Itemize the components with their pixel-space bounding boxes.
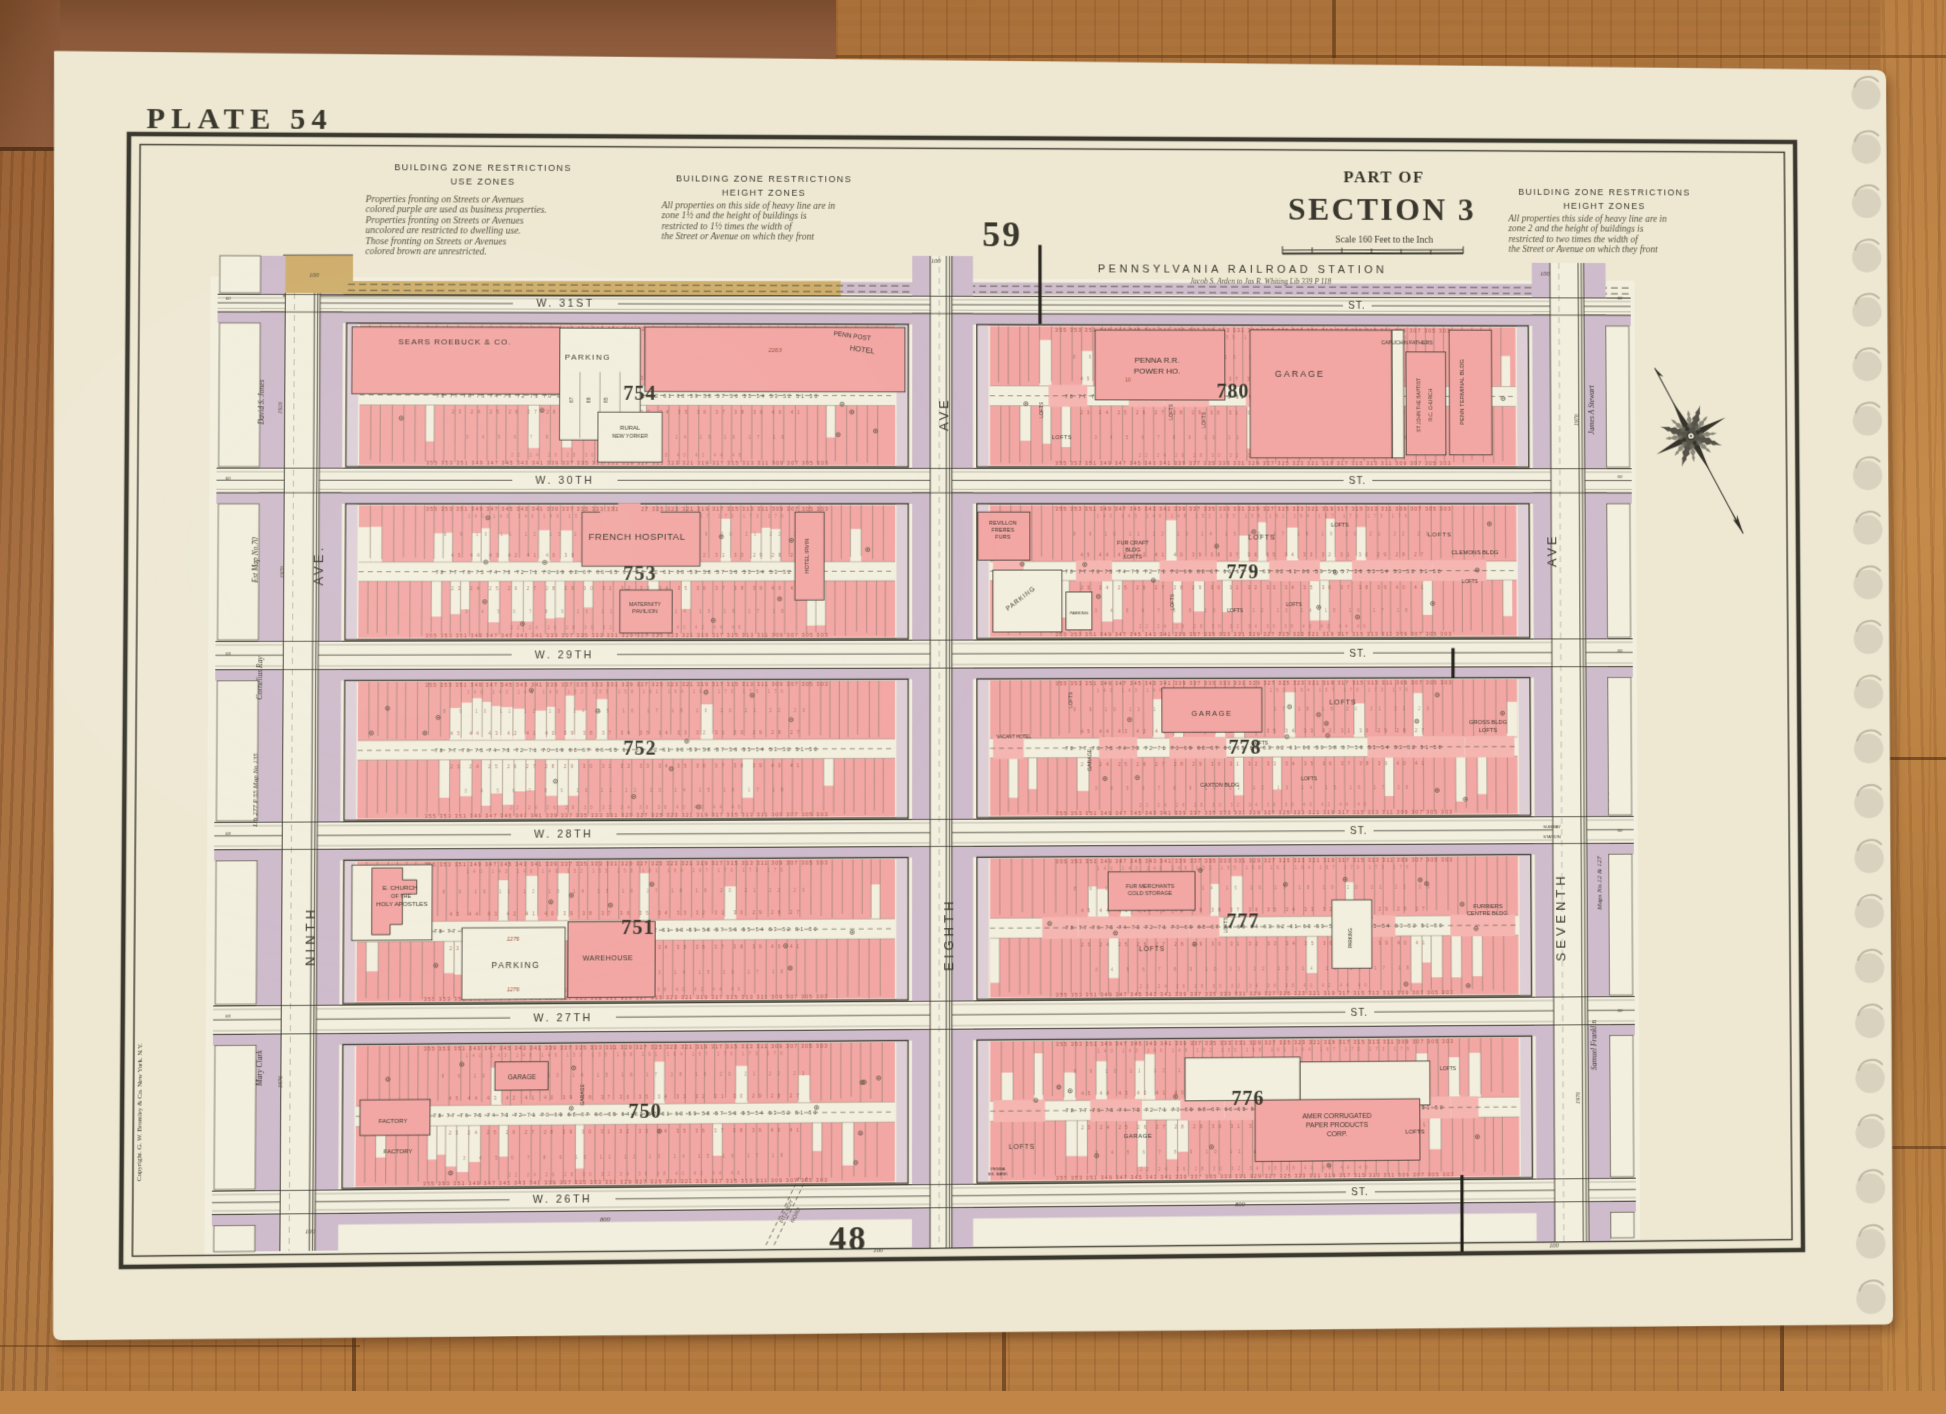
- svg-text:1926: 1926: [278, 402, 284, 414]
- svg-text:355 353 351 349 347 345: 355 353 351 349 347 345 343 341 339 337 …: [1055, 461, 1451, 467]
- svg-text:OF THE: OF THE: [391, 894, 411, 900]
- svg-text:VACANT HOTEL: VACANT HOTEL: [997, 734, 1032, 739]
- svg-text:60: 60: [225, 651, 231, 657]
- svg-text:LOFTS: LOFTS: [1068, 691, 1074, 708]
- svg-text:CLEMONS BLDG: CLEMONS BLDG: [1451, 550, 1498, 556]
- svg-text:59: 59: [982, 215, 1022, 254]
- svg-text:BUILDING ZONE RESTRICTIONS: BUILDING ZONE RESTRICTIONS: [1518, 187, 1690, 197]
- svg-text:FACTORY: FACTORY: [379, 1119, 408, 1125]
- svg-text:GARAGE: GARAGE: [1192, 709, 1233, 718]
- svg-text:HEIGHT ZONES: HEIGHT ZONES: [722, 188, 806, 198]
- svg-text:776: 776: [1231, 1088, 1264, 1110]
- svg-text:1276: 1276: [507, 937, 520, 943]
- svg-text:Copyright. G. W. Bromley & Co.: Copyright. G. W. Bromley & Co. New York.…: [136, 1043, 144, 1181]
- svg-text:LOFTS: LOFTS: [1124, 555, 1142, 561]
- svg-text:FACTORY: FACTORY: [384, 1149, 413, 1155]
- svg-text:RURAL: RURAL: [620, 426, 641, 432]
- svg-text:751: 751: [621, 917, 654, 939]
- svg-text:GROSS BLDG: GROSS BLDG: [1469, 720, 1507, 726]
- svg-text:GARAGE: GARAGE: [508, 1074, 537, 1081]
- svg-text:colored brown are unrestricted: colored brown are unrestricted.: [365, 246, 487, 257]
- svg-text:48: 48: [829, 1219, 867, 1257]
- svg-text:GARAGE: GARAGE: [1275, 369, 1325, 379]
- svg-text:BUILDING ZONE RESTRICTIONS: BUILDING ZONE RESTRICTIONS: [394, 162, 572, 173]
- svg-text:FRENCH HOSPITAL: FRENCH HOSPITAL: [589, 532, 686, 543]
- svg-text:USE ZONES: USE ZONES: [450, 177, 515, 187]
- svg-text:COLD STORAGE: COLD STORAGE: [1128, 891, 1173, 897]
- svg-text:PLATE 54: PLATE 54: [146, 101, 333, 136]
- svg-text:23 24 25 26 27 28 29 30: 23 24 25 26 27 28 29 30 31 32 33 34 35 3…: [450, 764, 803, 771]
- svg-text:754: 754: [623, 383, 656, 405]
- svg-text:LOFTS: LOFTS: [1227, 608, 1244, 614]
- svg-text:W. 26TH: W. 26TH: [533, 1194, 592, 1207]
- svg-text:GARAGE: GARAGE: [580, 1084, 586, 1106]
- svg-text:FRERES: FRERES: [992, 528, 1015, 534]
- svg-text:23 24 25 26 27 28 29 30: 23 24 25 26 27 28 29 30 31 32 33 34 35 3…: [1081, 761, 1428, 768]
- svg-text:Samuel Franklin: Samuel Franklin: [1589, 1020, 1598, 1070]
- svg-text:AVE: AVE: [1545, 533, 1560, 567]
- svg-text:3 4 5 6 7 8 9 10 11 1: 3 4 5 6 7 8 9 10 11 12 13 14 15 16 17 18: [1095, 608, 1414, 613]
- svg-text:STATION: STATION: [1543, 834, 1560, 839]
- svg-text:Mary Clark: Mary Clark: [255, 1050, 264, 1087]
- svg-text:1976: 1976: [1576, 1092, 1582, 1104]
- svg-text:45 44 43 42 41 40 39 38: 45 44 43 42 41 40 39 38 37 36 35 34 33 3…: [450, 730, 803, 737]
- svg-text:AMER CORRUGATED: AMER CORRUGATED: [1302, 1113, 1371, 1121]
- svg-text:LOFTS: LOFTS: [1286, 602, 1303, 608]
- svg-text:60: 60: [1617, 1008, 1622, 1014]
- svg-text:LOFTS: LOFTS: [1301, 776, 1318, 782]
- svg-text:355 353 351 349 347 345: 355 353 351 349 347 345 343 341 339 337 …: [1055, 681, 1452, 688]
- svg-text:ST.: ST.: [1350, 826, 1367, 837]
- svg-text:100: 100: [1549, 1243, 1559, 1250]
- svg-text:23 24 25 26 27 28 29 30: 23 24 25 26 27 28 29 30 31 32 33 34 35 3…: [1080, 585, 1427, 591]
- svg-text:PENN TERMINAL BLDG: PENN TERMINAL BLDG: [1460, 359, 1466, 425]
- svg-text:750: 750: [628, 1101, 662, 1123]
- svg-text:2263: 2263: [767, 348, 782, 354]
- svg-text:355 353 351 349 347 345: 355 353 351 349 347 345 343 341 339 337 …: [1055, 632, 1452, 639]
- svg-text:LOFTS: LOFTS: [1331, 523, 1349, 529]
- svg-text:Lib 277 P 55 Map No 135: Lib 277 P 55 Map No 135: [252, 753, 261, 828]
- svg-text:60: 60: [1618, 828, 1623, 834]
- svg-text:PENNSYLVANIA RAILROAD STATIO: PENNSYLVANIA RAILROAD STATION: [1098, 264, 1387, 277]
- svg-text:FUR MERCHANTS: FUR MERCHANTS: [1126, 884, 1175, 890]
- svg-text:LOFTS: LOFTS: [1169, 403, 1175, 420]
- svg-text:753: 753: [623, 563, 656, 585]
- svg-text:60: 60: [1617, 296, 1622, 302]
- svg-text:66: 66: [586, 397, 592, 403]
- svg-text:800: 800: [600, 1217, 611, 1224]
- svg-text:LOFTS: LOFTS: [1009, 1144, 1035, 1151]
- svg-text:355 353 351 349 347 345: 355 353 351 349 347 345 343 341 339 337 …: [425, 633, 829, 640]
- svg-text:777: 777: [1227, 911, 1260, 933]
- svg-text:1976: 1976: [278, 1076, 284, 1088]
- svg-text:60: 60: [225, 1014, 231, 1020]
- svg-text:HOLY APOSTLES: HOLY APOSTLES: [376, 901, 427, 908]
- svg-text:65: 65: [604, 397, 610, 403]
- svg-text:W. 31ST: W. 31ST: [536, 298, 594, 310]
- svg-text:HOTEL IRVIN: HOTEL IRVIN: [805, 539, 811, 574]
- svg-text:LOFTS: LOFTS: [1139, 946, 1165, 953]
- svg-text:AVE: AVE: [936, 397, 951, 431]
- svg-text:SEARS ROEBUCK & CO.: SEARS ROEBUCK & CO.: [398, 337, 511, 346]
- svg-text:E. CHURCH: E. CHURCH: [382, 885, 418, 892]
- svg-text:LOFTS: LOFTS: [1202, 411, 1208, 428]
- svg-text:ST.: ST.: [1349, 649, 1366, 660]
- svg-text:PENNA R.R.: PENNA R.R.: [1134, 356, 1179, 365]
- svg-text:60: 60: [1618, 648, 1623, 654]
- svg-text:Est Map No.70: Est Map No.70: [251, 537, 260, 584]
- svg-text:W. 30TH: W. 30TH: [535, 475, 594, 487]
- svg-text:EIGHTH: EIGHTH: [941, 897, 956, 970]
- svg-text:MATERNITY: MATERNITY: [629, 602, 661, 608]
- svg-text:LOFTS: LOFTS: [1462, 579, 1479, 585]
- svg-text:ST.: ST.: [1348, 301, 1365, 312]
- svg-text:100: 100: [1540, 271, 1550, 278]
- svg-text:REVILLON: REVILLON: [989, 521, 1017, 527]
- svg-text:W. 28TH: W. 28TH: [534, 829, 593, 841]
- svg-text:Jacob S. Arden to Jas R. Whi: Jacob S. Arden to Jas R. Whiting Lib 339…: [1190, 277, 1331, 286]
- svg-text:POWER HO.: POWER HO.: [1134, 367, 1180, 376]
- svg-text:EX. BANK: EX. BANK: [988, 1171, 1008, 1176]
- svg-text:140 143 146 149 152 155: 140 143 146 149 152 155 158 161 164 167 …: [1097, 514, 1411, 519]
- svg-text:PARKING: PARKING: [565, 353, 611, 362]
- svg-text:140 143 146 149 152 155: 140 143 146 149 152 155 158 161 164 167 …: [467, 690, 787, 696]
- svg-text:752: 752: [623, 738, 656, 760]
- svg-text:SEVENTH: SEVENTH: [1553, 872, 1568, 961]
- svg-text:CENTRE BLDG.: CENTRE BLDG.: [1467, 911, 1510, 917]
- svg-text:BUILDING ZONE RESTRICTIONS: BUILDING ZONE RESTRICTIONS: [676, 174, 852, 185]
- svg-text:780: 780: [1217, 381, 1250, 403]
- svg-text:BLDG: BLDG: [1125, 548, 1140, 554]
- svg-text:LOFTS: LOFTS: [1440, 1066, 1457, 1072]
- svg-text:1976: 1976: [280, 566, 286, 578]
- svg-text:100: 100: [309, 272, 320, 279]
- svg-text:NEW YORKER: NEW YORKER: [612, 434, 648, 440]
- svg-text:1276: 1276: [507, 987, 520, 993]
- svg-text:Cornelius Ray: Cornelius Ray: [255, 656, 264, 700]
- svg-text:FUR CRAFT: FUR CRAFT: [1117, 541, 1149, 547]
- svg-text:FURS: FURS: [995, 535, 1010, 541]
- svg-text:100: 100: [305, 1229, 316, 1236]
- svg-text:PARKING: PARKING: [491, 960, 540, 970]
- svg-text:NINTH: NINTH: [303, 906, 318, 967]
- svg-text:WAREHOUSE: WAREHOUSE: [583, 954, 634, 962]
- svg-text:GARAGE: GARAGE: [1088, 748, 1094, 771]
- svg-text:10: 10: [1125, 378, 1131, 384]
- svg-text:W. 27TH: W. 27TH: [534, 1012, 593, 1024]
- svg-text:67: 67: [569, 397, 575, 403]
- svg-text:GARAGE: GARAGE: [1124, 1134, 1153, 1140]
- svg-text:22 24 26 28 30 32 34 36: 22 24 26 28 30 32 34 36 38 40 42 44 46: [1139, 624, 1370, 629]
- svg-text:22 24 26 28 30 32 34 36: 22 24 26 28 30 32 34 36 38 40 42 44 46: [510, 805, 745, 811]
- svg-text:R.C. CHURCH: R.C. CHURCH: [1428, 388, 1434, 421]
- svg-text:8 9 10 11 12 13 14 15: 8 9 10 11 12 13 14 15 16 17 18 19 20 21 …: [443, 708, 811, 714]
- svg-text:800: 800: [1235, 1201, 1245, 1208]
- svg-text:CAXTON BLDG: CAXTON BLDG: [1200, 783, 1239, 789]
- svg-text:100: 100: [873, 1247, 884, 1254]
- svg-text:ST JOHN THE BAPTIST: ST JOHN THE BAPTIST: [1416, 378, 1422, 432]
- svg-text:ST.: ST.: [1349, 476, 1366, 487]
- svg-text:SECTION 3: SECTION 3: [1288, 192, 1476, 228]
- svg-text:LOFTS: LOFTS: [1248, 534, 1275, 542]
- svg-text:PARKING: PARKING: [1348, 928, 1353, 948]
- svg-text:355 353 351 349 347 345: 355 353 351 349 347 345 343 341 339 337 …: [1055, 507, 1452, 513]
- svg-text:LOFTS: LOFTS: [1170, 593, 1176, 610]
- svg-text:PARKING: PARKING: [1070, 610, 1089, 615]
- svg-text:LOFTS: LOFTS: [1428, 533, 1452, 539]
- svg-text:SUBWAY: SUBWAY: [1543, 824, 1561, 829]
- svg-text:60: 60: [225, 476, 231, 482]
- svg-text:PART OF: PART OF: [1343, 168, 1424, 187]
- svg-text:LOFTS: LOFTS: [1039, 401, 1045, 418]
- svg-text:ST.: ST.: [1351, 1008, 1368, 1019]
- svg-text:LOFTS: LOFTS: [1405, 1130, 1424, 1136]
- svg-text:CORP.: CORP.: [1327, 1131, 1348, 1138]
- svg-text:PAVILION: PAVILION: [632, 609, 657, 615]
- svg-text:David S. Jones: David S. Jones: [257, 380, 266, 426]
- svg-text:the Street or Avenue on which: the Street or Avenue on which they front: [1508, 244, 1658, 255]
- svg-text:100: 100: [931, 258, 941, 265]
- svg-text:1976: 1976: [1574, 414, 1580, 426]
- svg-text:CAPUCHIN FATHERS: CAPUCHIN FATHERS: [1381, 340, 1433, 346]
- svg-text:AVE.: AVE.: [311, 545, 326, 586]
- svg-text:778: 778: [1229, 737, 1262, 759]
- svg-text:22 24 26 28 30 32 34 36: 22 24 26 28 30 32 34 36 38 40 42 44 46: [1139, 802, 1370, 808]
- svg-text:James A Stewart: James A Stewart: [1587, 385, 1596, 435]
- svg-text:the Street or Avenue on which: the Street or Avenue on which they front: [661, 231, 814, 242]
- svg-text:FURRIERS: FURRIERS: [1473, 904, 1502, 910]
- svg-text:LOFTS: LOFTS: [1479, 728, 1498, 734]
- svg-text:60: 60: [225, 296, 231, 302]
- svg-text:Maps No.12 & 127: Maps No.12 & 127: [1596, 856, 1604, 911]
- svg-text:HEIGHT ZONES: HEIGHT ZONES: [1563, 201, 1646, 211]
- svg-text:60: 60: [225, 831, 231, 837]
- svg-text:ST.: ST.: [1351, 1187, 1368, 1198]
- svg-text:60: 60: [1618, 474, 1623, 480]
- svg-text:PAPER PRODUCTS: PAPER PRODUCTS: [1306, 1122, 1369, 1129]
- svg-text:779: 779: [1227, 561, 1260, 583]
- svg-text:W. 29TH: W. 29TH: [535, 649, 594, 661]
- svg-text:LOFTS: LOFTS: [1329, 699, 1356, 707]
- svg-text:355 353 351 349 347 345: 355 353 351 349 347 345 343 341 339 337 …: [425, 682, 829, 689]
- svg-text:Scale 160 Feet to the Inch: Scale 160 Feet to the Inch: [1335, 235, 1433, 246]
- svg-text:LOFTS: LOFTS: [1052, 435, 1072, 441]
